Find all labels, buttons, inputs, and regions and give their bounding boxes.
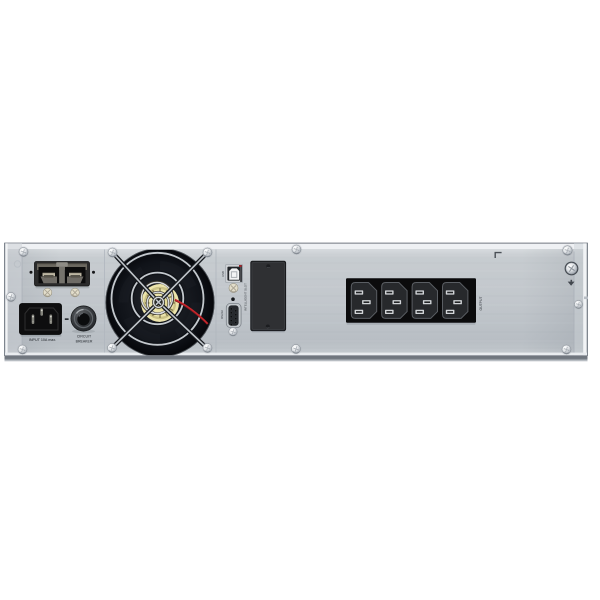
svg-text:BREAKER: BREAKER [76,339,93,343]
svg-text:USB: USB [221,271,225,277]
svg-text:CIRCUIT: CIRCUIT [77,334,92,338]
svg-text:OUTPUT: OUTPUT [479,297,483,311]
svg-text:RS232: RS232 [220,310,224,319]
svg-text:INPUT 10A max.: INPUT 10A max. [29,338,56,342]
svg-text:INTELLIGENT SLOT: INTELLIGENT SLOT [244,283,248,311]
